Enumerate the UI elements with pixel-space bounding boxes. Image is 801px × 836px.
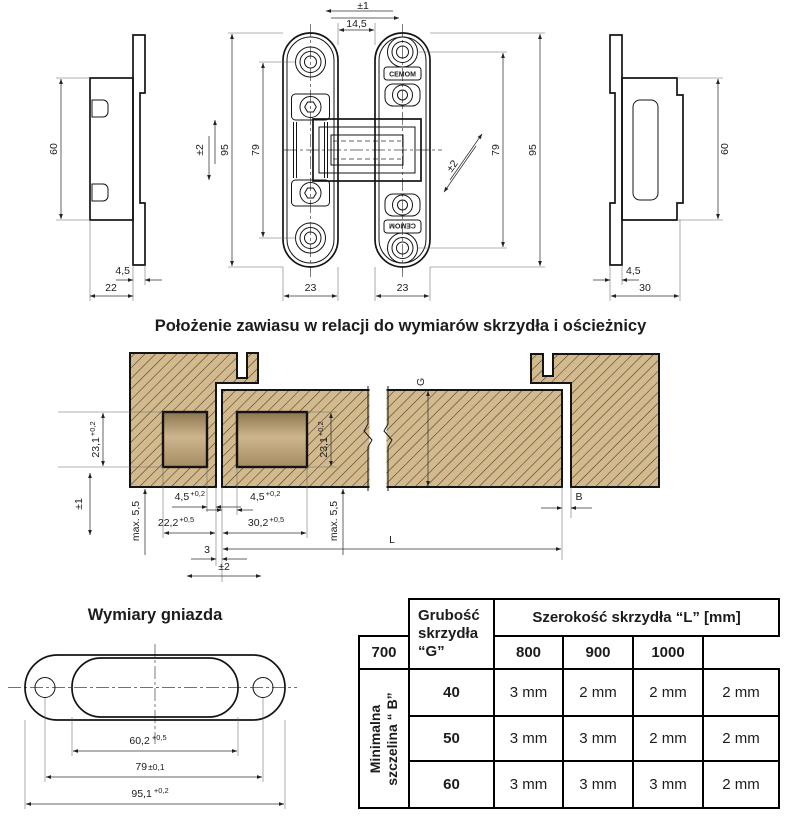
row-header-line1: Minimalna [367,704,383,772]
width-col-700: 700 [359,636,409,669]
hinge-pocket-frame [163,412,207,467]
width-col-1000: 1000 [633,636,703,669]
gap-cell: 3 mm [563,716,633,761]
width-header: Szerokość skrzydła “L” [mm] [494,599,779,636]
gap-cell: 3 mm [494,761,563,808]
gap-cell: 2 mm [703,761,779,808]
dim-play-diagonal: ±2 [444,158,461,175]
dim-socket-width: 60,2+0,5 [129,733,166,747]
dim-width-right: 30 [639,282,651,294]
dim-play-vertical: ±2 [194,144,206,156]
brand-text: CEMOM [389,222,416,229]
dim-min-gap-B: B [575,491,582,503]
technical-drawing-page: 60 4,5 22 [0,0,801,836]
row-header-min-gap: Minimalna szczelina “ B” [359,669,409,808]
dim-depth-leaf: 30,2+0,5 [248,515,284,529]
dim-play-horizontal: ±1 [357,0,369,12]
row-header-line2: szczelina “ B” [384,692,400,785]
min-gap-table: Grubość skrzydła “G” Szerokość skrzydła … [358,598,780,809]
width-col-900: 900 [563,636,633,669]
table-row: 60 3 mm 3 mm 3 mm 2 mm [359,761,779,808]
thickness-50: 50 [409,716,494,761]
left-profile-view: 60 4,5 22 [48,35,162,301]
dim-height-right: 60 [719,143,731,155]
gap-cell: 2 mm [703,669,779,716]
socket-section-title: Wymiary gniazda [30,606,280,625]
dim-holes-79-right: 79 [490,144,502,156]
position-section-title: Położenie zawiasu w relacji do wymiarów … [0,317,801,336]
dim-inset-frame: 4,5+0,2 [175,489,205,503]
dim-leaf-thickness-G: G [415,378,427,386]
thickness-header: Grubość skrzydła “G” [409,599,494,669]
door-leaf-block [222,386,562,491]
dim-plate-gap: 14,5 [346,18,367,30]
frame-plate-strip [610,35,622,265]
mount-tab [92,100,108,117]
gap-cell: 3 mm [494,669,563,716]
thickness-40: 40 [409,669,494,716]
dim-max-frame: max. 5,5 [130,501,142,541]
inner-recess [633,100,658,200]
dim-play-horizontal: ±2 [218,561,230,573]
dim-plate-width-left: 23 [305,282,317,294]
dim-outer-length: 95,1+0,2 [131,786,168,800]
hinge-body [90,78,133,220]
hinge-pocket-leaf [237,412,307,467]
mount-tab [92,184,108,201]
dim-height-95-left: 95 [219,144,231,156]
dim-width-left: 22 [105,282,117,294]
dim-inset-leaf: 4,5+0,2 [250,489,280,503]
dim-thickness-right: 4,5 [626,265,641,277]
brand-text: CEMOM [389,72,416,79]
table-row: Minimalna szczelina “ B” 40 3 mm 2 mm 2 … [359,669,779,716]
dim-depth-frame: 22,2+0,5 [158,515,194,529]
gap-cell: 3 mm [494,716,563,761]
gap-cell: 2 mm [633,669,703,716]
thickness-60: 60 [409,761,494,808]
dim-plate-width-right: 23 [397,282,409,294]
right-profile-view: 60 4,5 30 [593,35,731,301]
cross-section-drawing: ±1 23,1+0,2 max. 5,5 4,5+0,2 22,2+0,5 3 … [0,350,801,600]
dim-play-vertical: ±1 [73,498,85,510]
hinge-body [622,78,683,220]
dim-max-leaf: max. 5,5 [328,501,340,541]
gap-cell: 2 mm [703,716,779,761]
table-row: 50 3 mm 3 mm 2 mm 2 mm [359,716,779,761]
dim-holes-79-left: 79 [250,144,262,156]
dim-thickness-left: 4,5 [115,265,130,277]
front-view: CEMOM CEMOM ±1 14,5 ±2 95 [194,0,545,301]
gap-cell: 2 mm [633,716,703,761]
gap-cell: 2 mm [563,669,633,716]
dim-height-95-right: 95 [527,144,539,156]
socket-drawing: 60,2+0,5 79±0,1 95,1+0,2 [0,630,355,836]
width-col-800: 800 [494,636,563,669]
dim-gap-3: 3 [204,544,210,556]
dim-height-left: 60 [48,143,60,155]
gap-cell: 3 mm [633,761,703,808]
dim-pocket-height-frame: 23,1+0,2 [88,421,102,457]
dim-hole-spacing: 79±0,1 [135,761,164,773]
frame-plate-strip [133,35,145,265]
gap-cell: 3 mm [563,761,633,808]
table-corner [359,599,409,636]
hinge-views-drawing: 60 4,5 22 [0,0,801,312]
dim-leaf-width-L: L [389,534,395,546]
